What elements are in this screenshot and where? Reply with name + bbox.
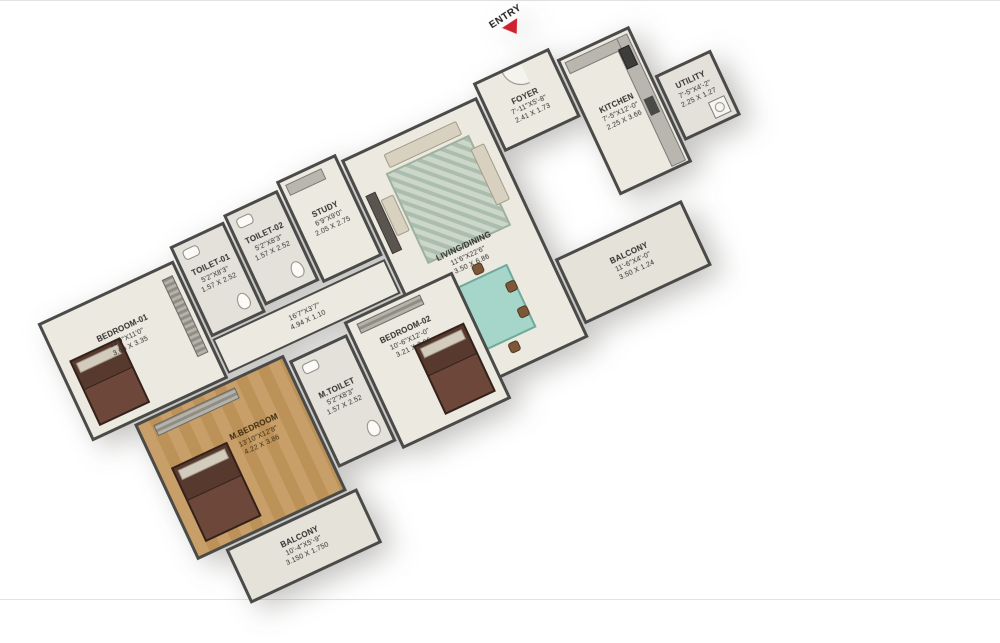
room-label: BALCONY 11'-6"X4'-0" 3.50 X 1.24: [548, 212, 718, 311]
dining-chair: [507, 340, 522, 355]
door-swing: [502, 64, 530, 92]
bed-blanket: [84, 367, 147, 424]
washing-machine: [708, 95, 732, 119]
washbasin-icon: [235, 212, 255, 229]
entry-marker: ENTRY: [473, 0, 546, 53]
wc-icon: [364, 418, 383, 439]
washbasin-icon: [301, 358, 321, 375]
floor-plan: ENTRY BEDROOM-01 12'0"X11'0" 3.66 X 3.35…: [11, 0, 838, 627]
wc-icon: [234, 291, 253, 312]
room-label: UTILITY 7'-5"X4'-2" 2.25 X 1.27: [645, 56, 744, 122]
kitchen-sink: [618, 45, 638, 70]
study-desk: [285, 168, 326, 196]
washbasin-icon: [181, 244, 201, 261]
room-balcony-right: BALCONY 11'-6"X4'-0" 3.50 X 1.24: [555, 200, 712, 324]
bed-blanket: [429, 354, 493, 413]
bed-blanket: [188, 475, 259, 539]
room-label: STUDY 6'9"X9'0" 2.05 X 2.75: [278, 184, 381, 252]
wc-icon: [288, 259, 307, 280]
